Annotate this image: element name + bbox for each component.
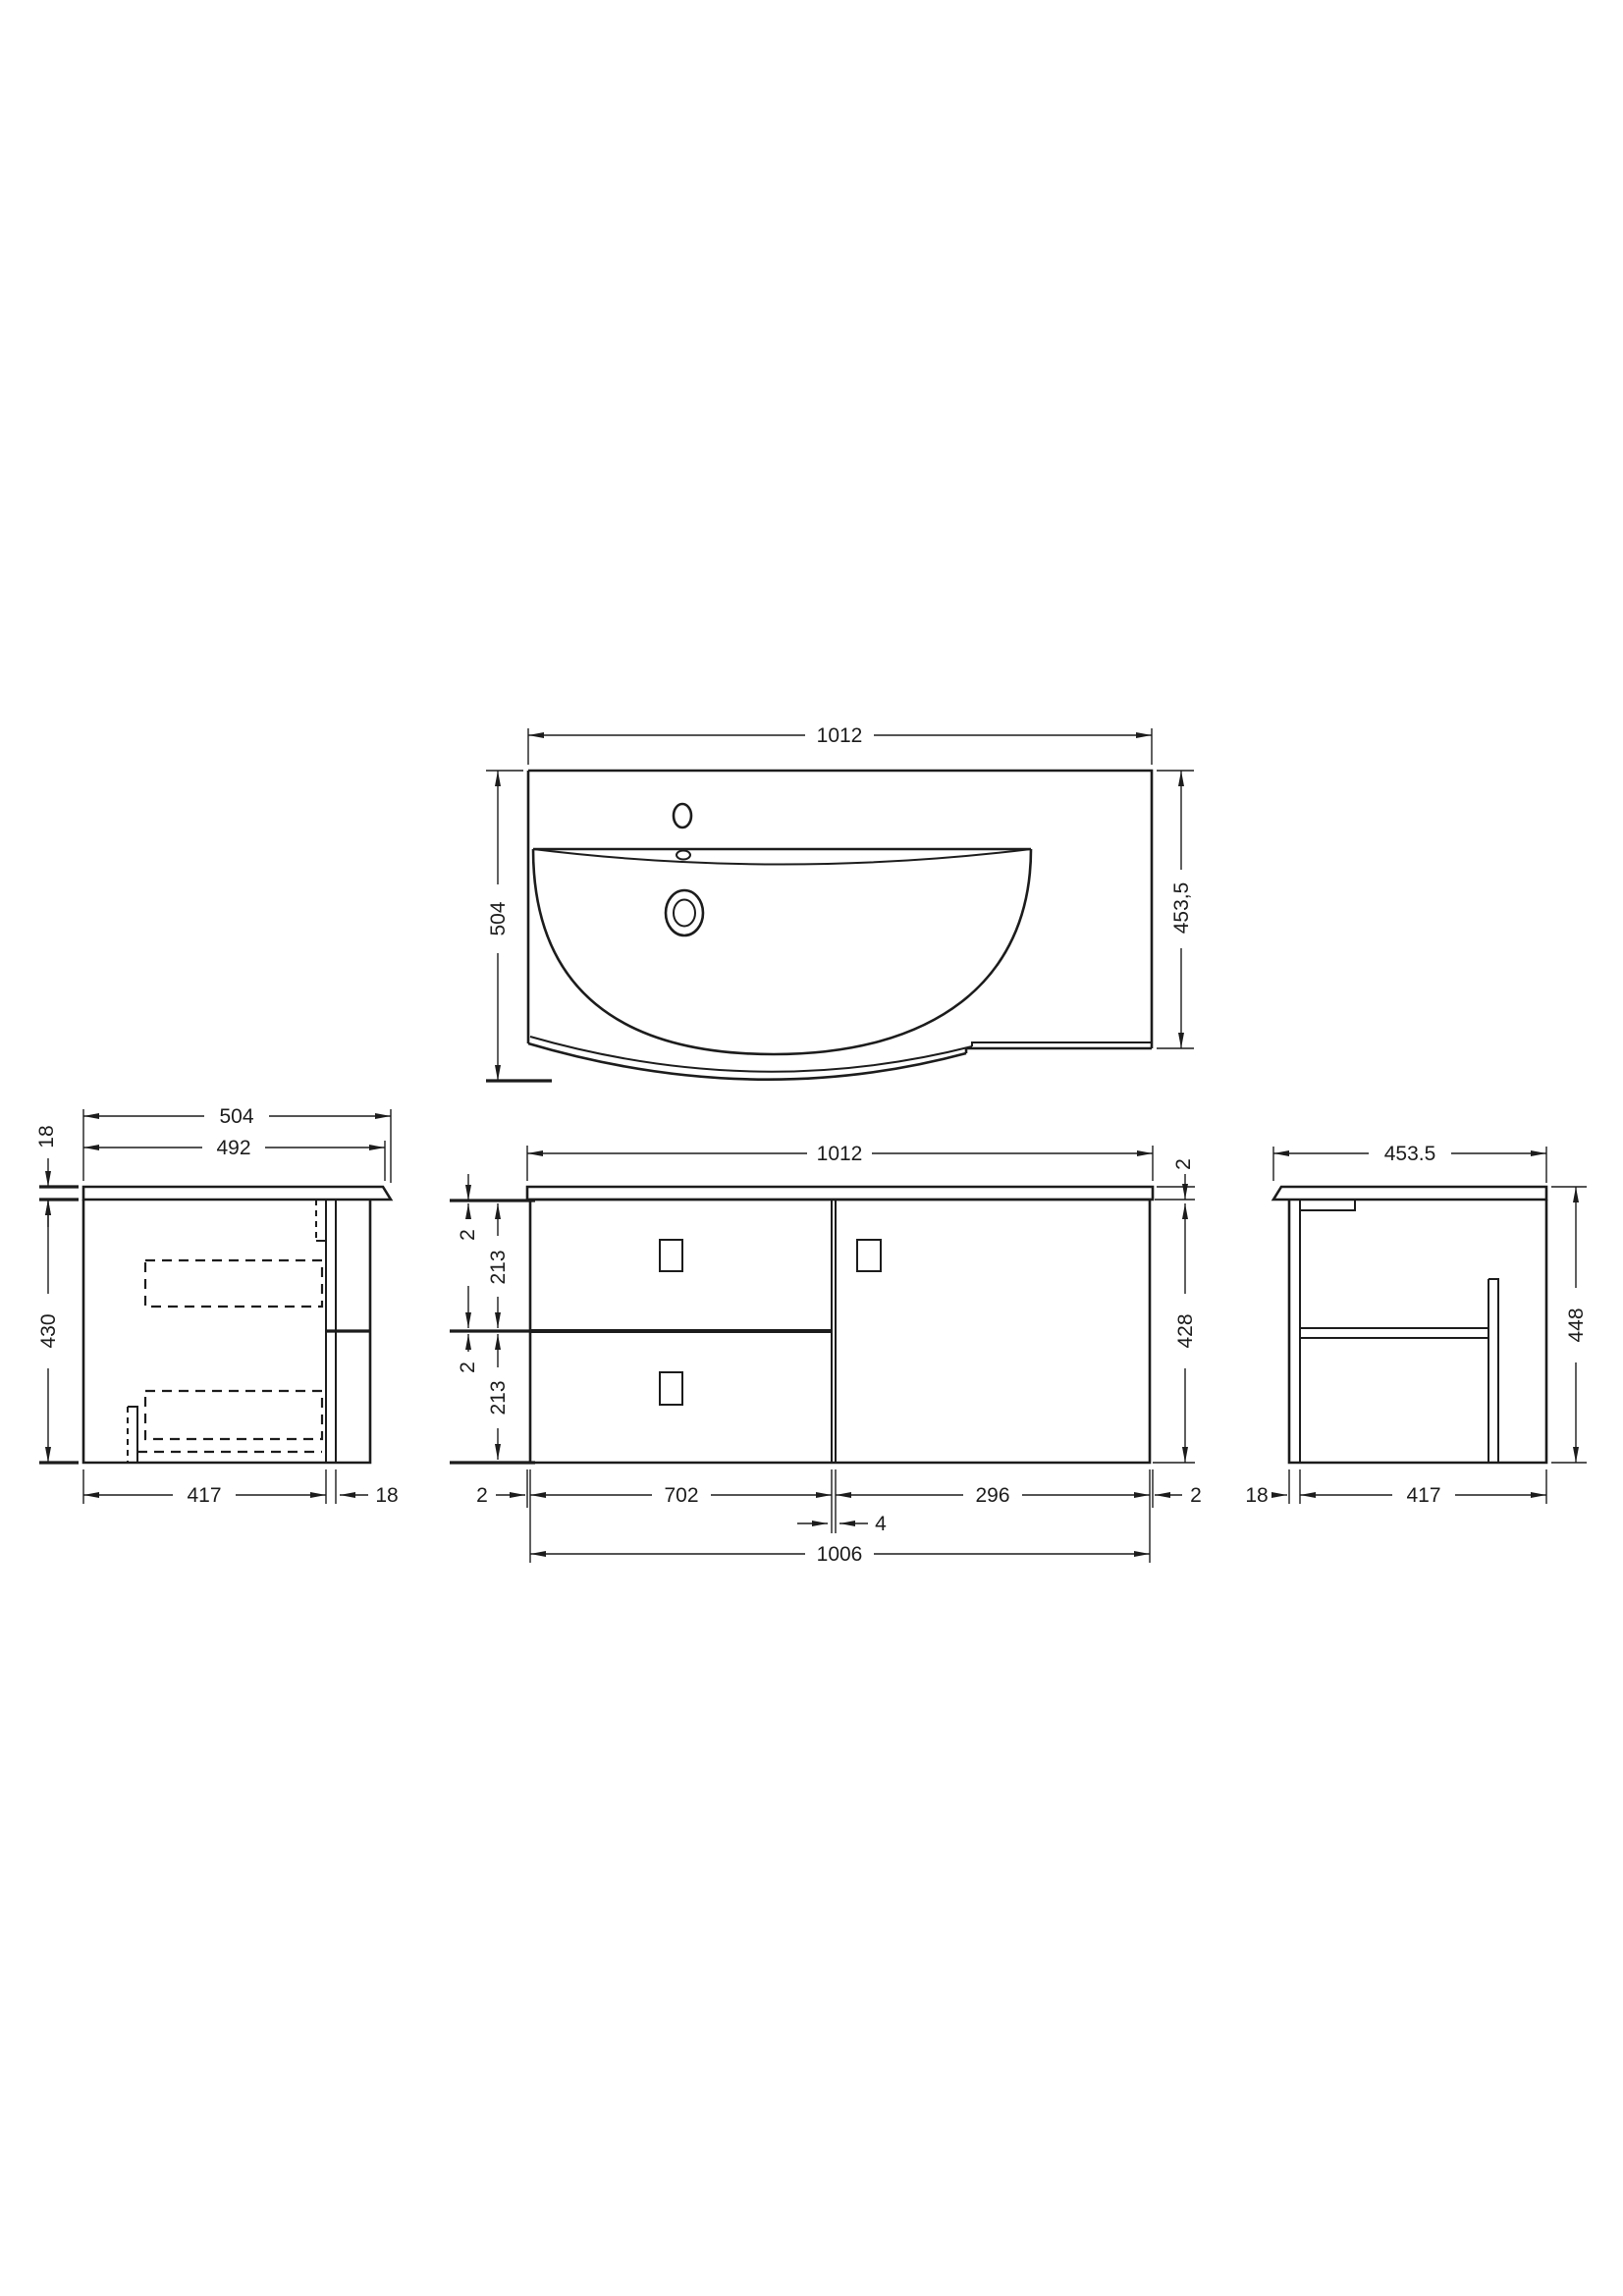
dim-front-divider-gap: 4 [875,1513,887,1535]
dim-front-right-edge: 2 [1190,1484,1202,1507]
plan-rim-inner-right [972,1042,1152,1046]
technical-drawing-page: 1012 504 453,5 1012 [0,0,1623,2296]
vanity-unit-technical-drawing: 1012 504 453,5 1012 [0,0,1623,2296]
waste-hole-inner-icon [674,900,695,927]
dim-front-top-gap: 2 [457,1229,479,1241]
dim-right-overall-height: 448 [1565,1308,1588,1342]
lower-drawer-handle[interactable] [660,1372,682,1405]
dim-plan-depth-left: 504 [487,901,510,935]
dim-right-overall-depth: 453.5 [1384,1143,1436,1165]
dim-left-carcass-depth: 417 [187,1484,221,1507]
overflow-hole-icon [676,851,690,860]
dim-front-door-width: 296 [975,1484,1009,1507]
dim-left-worktop-thickness: 18 [35,1125,58,1148]
dim-left-front-thickness: 18 [375,1484,398,1507]
waste-hole-outer-icon [666,890,703,935]
left-worktop [83,1187,391,1200]
dim-front-upper-drawer-height: 213 [487,1250,510,1284]
plan-basin-outline [528,771,1152,1048]
dim-front-worktop-gap-right: 2 [1172,1158,1195,1170]
plan-rim-outer-right [966,1048,1152,1053]
right-partition-wall [1488,1279,1498,1463]
right-under-top-rail [1300,1200,1355,1210]
tap-hole-icon [674,804,691,828]
dim-front-overall-width: 1012 [817,1143,863,1165]
dim-left-carcass-height: 430 [37,1313,60,1348]
dim-front-cabinet-height: 428 [1174,1313,1197,1348]
hidden-lower-drawer-box [145,1391,322,1439]
dim-plan-width: 1012 [817,724,863,747]
dim-plan-depth-right: 453,5 [1170,882,1193,934]
dim-front-lower-drawer-height: 213 [487,1380,510,1415]
dim-left-overall-depth: 504 [219,1105,253,1128]
left-side-view: 504 492 18 430 417 18 [35,1104,399,1507]
upper-drawer-handle[interactable] [660,1240,682,1271]
right-carcass-outline [1289,1200,1546,1463]
dim-right-front-thickness: 18 [1245,1484,1268,1507]
dim-front-cabinet-width: 1006 [817,1543,863,1566]
plan-view: 1012 504 453,5 [486,723,1194,1081]
right-side-view: 453.5 448 18 417 [1245,1142,1588,1507]
dim-left-inner-depth: 492 [216,1137,250,1159]
dim-front-left-edge: 2 [476,1484,488,1507]
trap-outline [128,1407,137,1463]
front-worktop [527,1187,1153,1200]
plan-bowl-arc [533,849,1031,1054]
front-view: 1012 2 2 213 213 2 428 [450,1142,1202,1566]
plan-bowl-ledge-arc [533,849,1031,865]
door-handle[interactable] [857,1240,881,1271]
dim-front-mid-gap: 2 [457,1362,479,1373]
right-worktop [1273,1187,1546,1200]
dim-front-drawer-width: 702 [664,1484,698,1507]
hidden-upper-drawer-box [145,1260,322,1307]
dim-right-carcass-depth: 417 [1406,1484,1440,1507]
